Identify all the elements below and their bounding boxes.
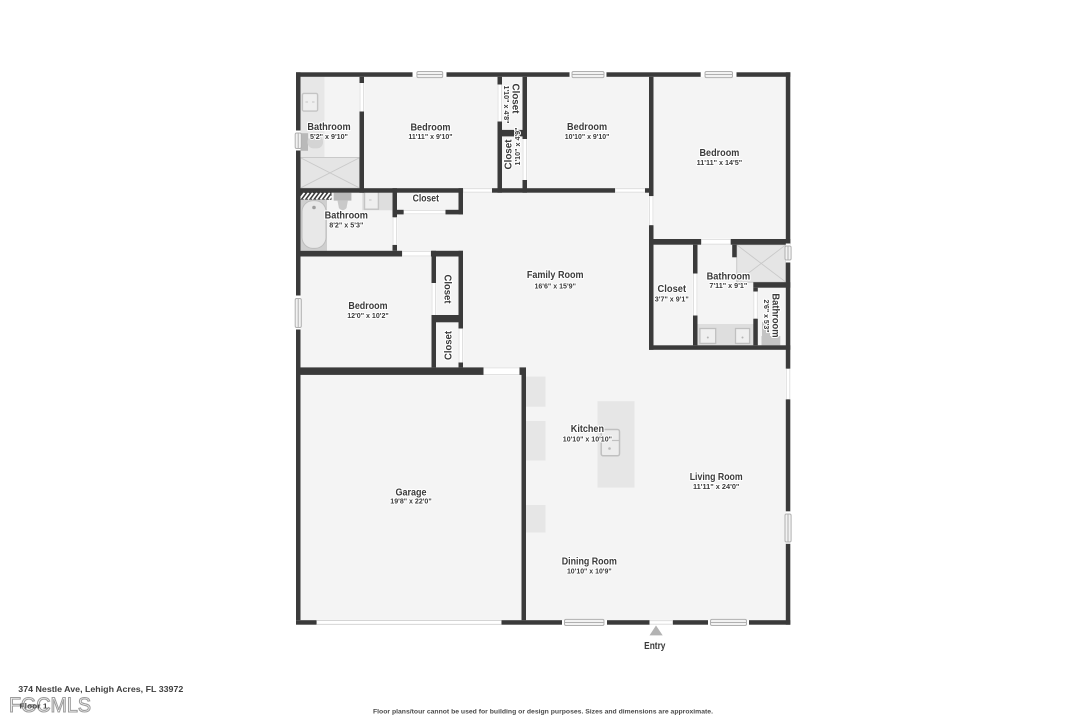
svg-text:Floor 1: Floor 1 <box>20 702 48 711</box>
svg-text:Entry: Entry <box>644 641 666 652</box>
svg-text:1'10" x 4'8": 1'10" x 4'8" <box>502 86 511 124</box>
svg-text:2'6" x 5'3": 2'6" x 5'3" <box>762 300 771 333</box>
svg-text:Closet: Closet <box>441 275 452 305</box>
svg-text:16'6" x 15'9": 16'6" x 15'9" <box>534 281 576 290</box>
svg-text:1'10" x 4'9": 1'10" x 4'9" <box>513 128 522 166</box>
svg-text:5'2" x 9'10": 5'2" x 9'10" <box>310 132 348 141</box>
svg-text:Family Room: Family Room <box>527 270 584 281</box>
svg-text:3'7" x 9'1": 3'7" x 9'1" <box>655 295 689 304</box>
svg-text:10'10" x 9'10": 10'10" x 9'10" <box>565 132 610 141</box>
svg-text:Closet: Closet <box>413 193 440 204</box>
svg-text:11'11" x 24'0": 11'11" x 24'0" <box>693 482 739 491</box>
svg-text:8'2" x 5'3": 8'2" x 5'3" <box>329 221 363 230</box>
svg-text:11'11" x 9'10": 11'11" x 9'10" <box>408 132 452 141</box>
svg-text:19'8" x 22'0": 19'8" x 22'0" <box>390 496 431 505</box>
svg-text:Floor plans/tour cannot be use: Floor plans/tour cannot be used for buil… <box>373 709 713 716</box>
svg-text:12'0" x 10'2": 12'0" x 10'2" <box>347 311 389 320</box>
svg-text:11'11" x 14'5": 11'11" x 14'5" <box>697 158 743 167</box>
svg-text:Kitchen: Kitchen <box>571 424 604 435</box>
svg-text:Closet: Closet <box>444 330 455 360</box>
svg-text:Closet: Closet <box>658 284 687 295</box>
svg-text:374 Nestle Ave, Lehigh Acres,: 374 Nestle Ave, Lehigh Acres, FL 33972 <box>18 685 183 694</box>
svg-text:10'10" x 10'10": 10'10" x 10'10" <box>563 434 612 443</box>
svg-text:10'10" x 10'9": 10'10" x 10'9" <box>567 567 612 576</box>
svg-text:7'11" x 9'1": 7'11" x 9'1" <box>709 281 747 290</box>
